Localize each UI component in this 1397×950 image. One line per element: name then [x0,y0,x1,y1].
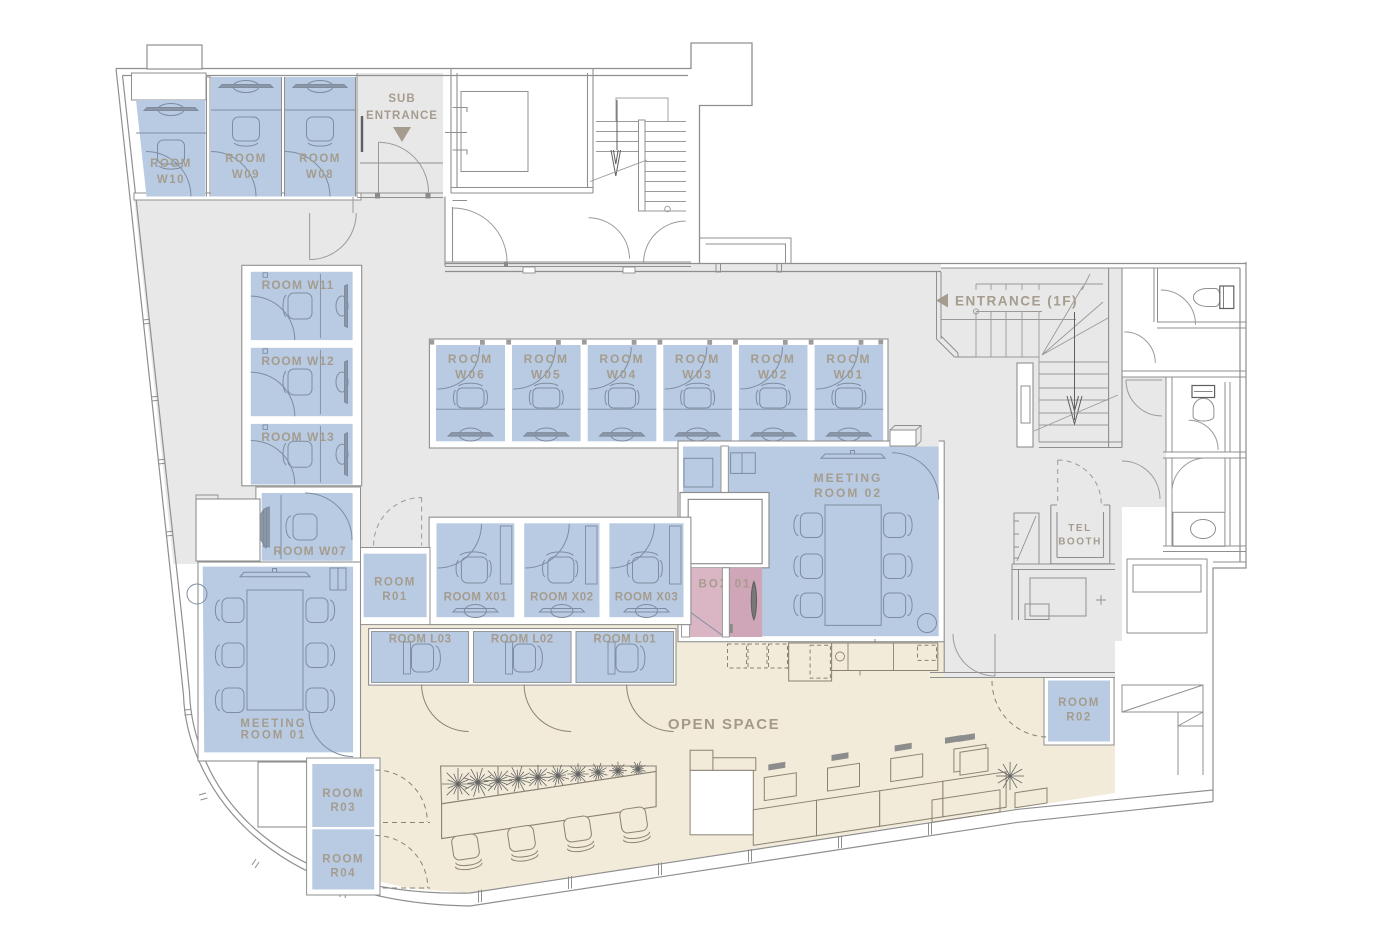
svg-text:ROOM: ROOM [1058,697,1100,709]
svg-text:TEL: TEL [1068,523,1091,534]
svg-text:ROOM X03: ROOM X03 [615,592,678,604]
svg-text:ENTRANCE (1F): ENTRANCE (1F) [955,294,1078,309]
svg-text:W06: W06 [455,368,486,382]
svg-text:MEETING: MEETING [814,471,883,485]
svg-text:BOOTH: BOOTH [1058,537,1102,548]
svg-text:ROOM: ROOM [374,577,416,589]
svg-text:R03: R03 [330,802,356,814]
svg-text:ROOM: ROOM [225,153,267,165]
svg-text:R04: R04 [330,868,356,880]
svg-text:ROOM: ROOM [599,352,644,366]
svg-text:R01: R01 [382,591,408,603]
svg-text:ROOM 01: ROOM 01 [241,730,307,742]
svg-text:ROOM W07: ROOM W07 [273,544,346,558]
svg-text:ROOM W13: ROOM W13 [261,430,334,444]
svg-text:W05: W05 [531,368,562,382]
svg-text:ROOM: ROOM [751,352,796,366]
svg-text:ROOM X01: ROOM X01 [444,592,508,604]
svg-text:SUB: SUB [388,93,415,105]
svg-text:ROOM: ROOM [322,854,364,866]
svg-text:ROOM L01: ROOM L01 [593,634,656,646]
svg-text:ROOM 02: ROOM 02 [814,486,882,500]
svg-text:MEETING: MEETING [240,718,306,730]
svg-text:ENTRANCE: ENTRANCE [366,110,438,122]
svg-text:OPEN SPACE: OPEN SPACE [668,716,780,733]
svg-text:ROOM: ROOM [448,352,493,366]
svg-text:ROOM W11: ROOM W11 [262,278,335,292]
svg-text:ROOM: ROOM [826,352,871,366]
svg-text:W10: W10 [157,174,185,186]
svg-text:ROOM: ROOM [322,788,364,800]
svg-text:ROOM: ROOM [299,153,341,165]
svg-text:ROOM: ROOM [524,352,569,366]
svg-text:ROOM: ROOM [675,352,720,366]
svg-text:W01: W01 [834,368,865,382]
svg-text:ROOM L02: ROOM L02 [491,634,554,646]
svg-text:ROOM: ROOM [150,158,192,170]
svg-text:W08: W08 [306,169,334,181]
svg-text:ROOM L03: ROOM L03 [389,634,452,646]
svg-text:ROOM W12: ROOM W12 [261,354,334,368]
svg-text:R02: R02 [1066,712,1092,724]
svg-text:W03: W03 [682,368,713,382]
svg-text:W02: W02 [758,368,789,382]
svg-text:W04: W04 [607,368,638,382]
svg-text:ROOM X02: ROOM X02 [530,592,593,604]
svg-text:W09: W09 [232,169,260,181]
